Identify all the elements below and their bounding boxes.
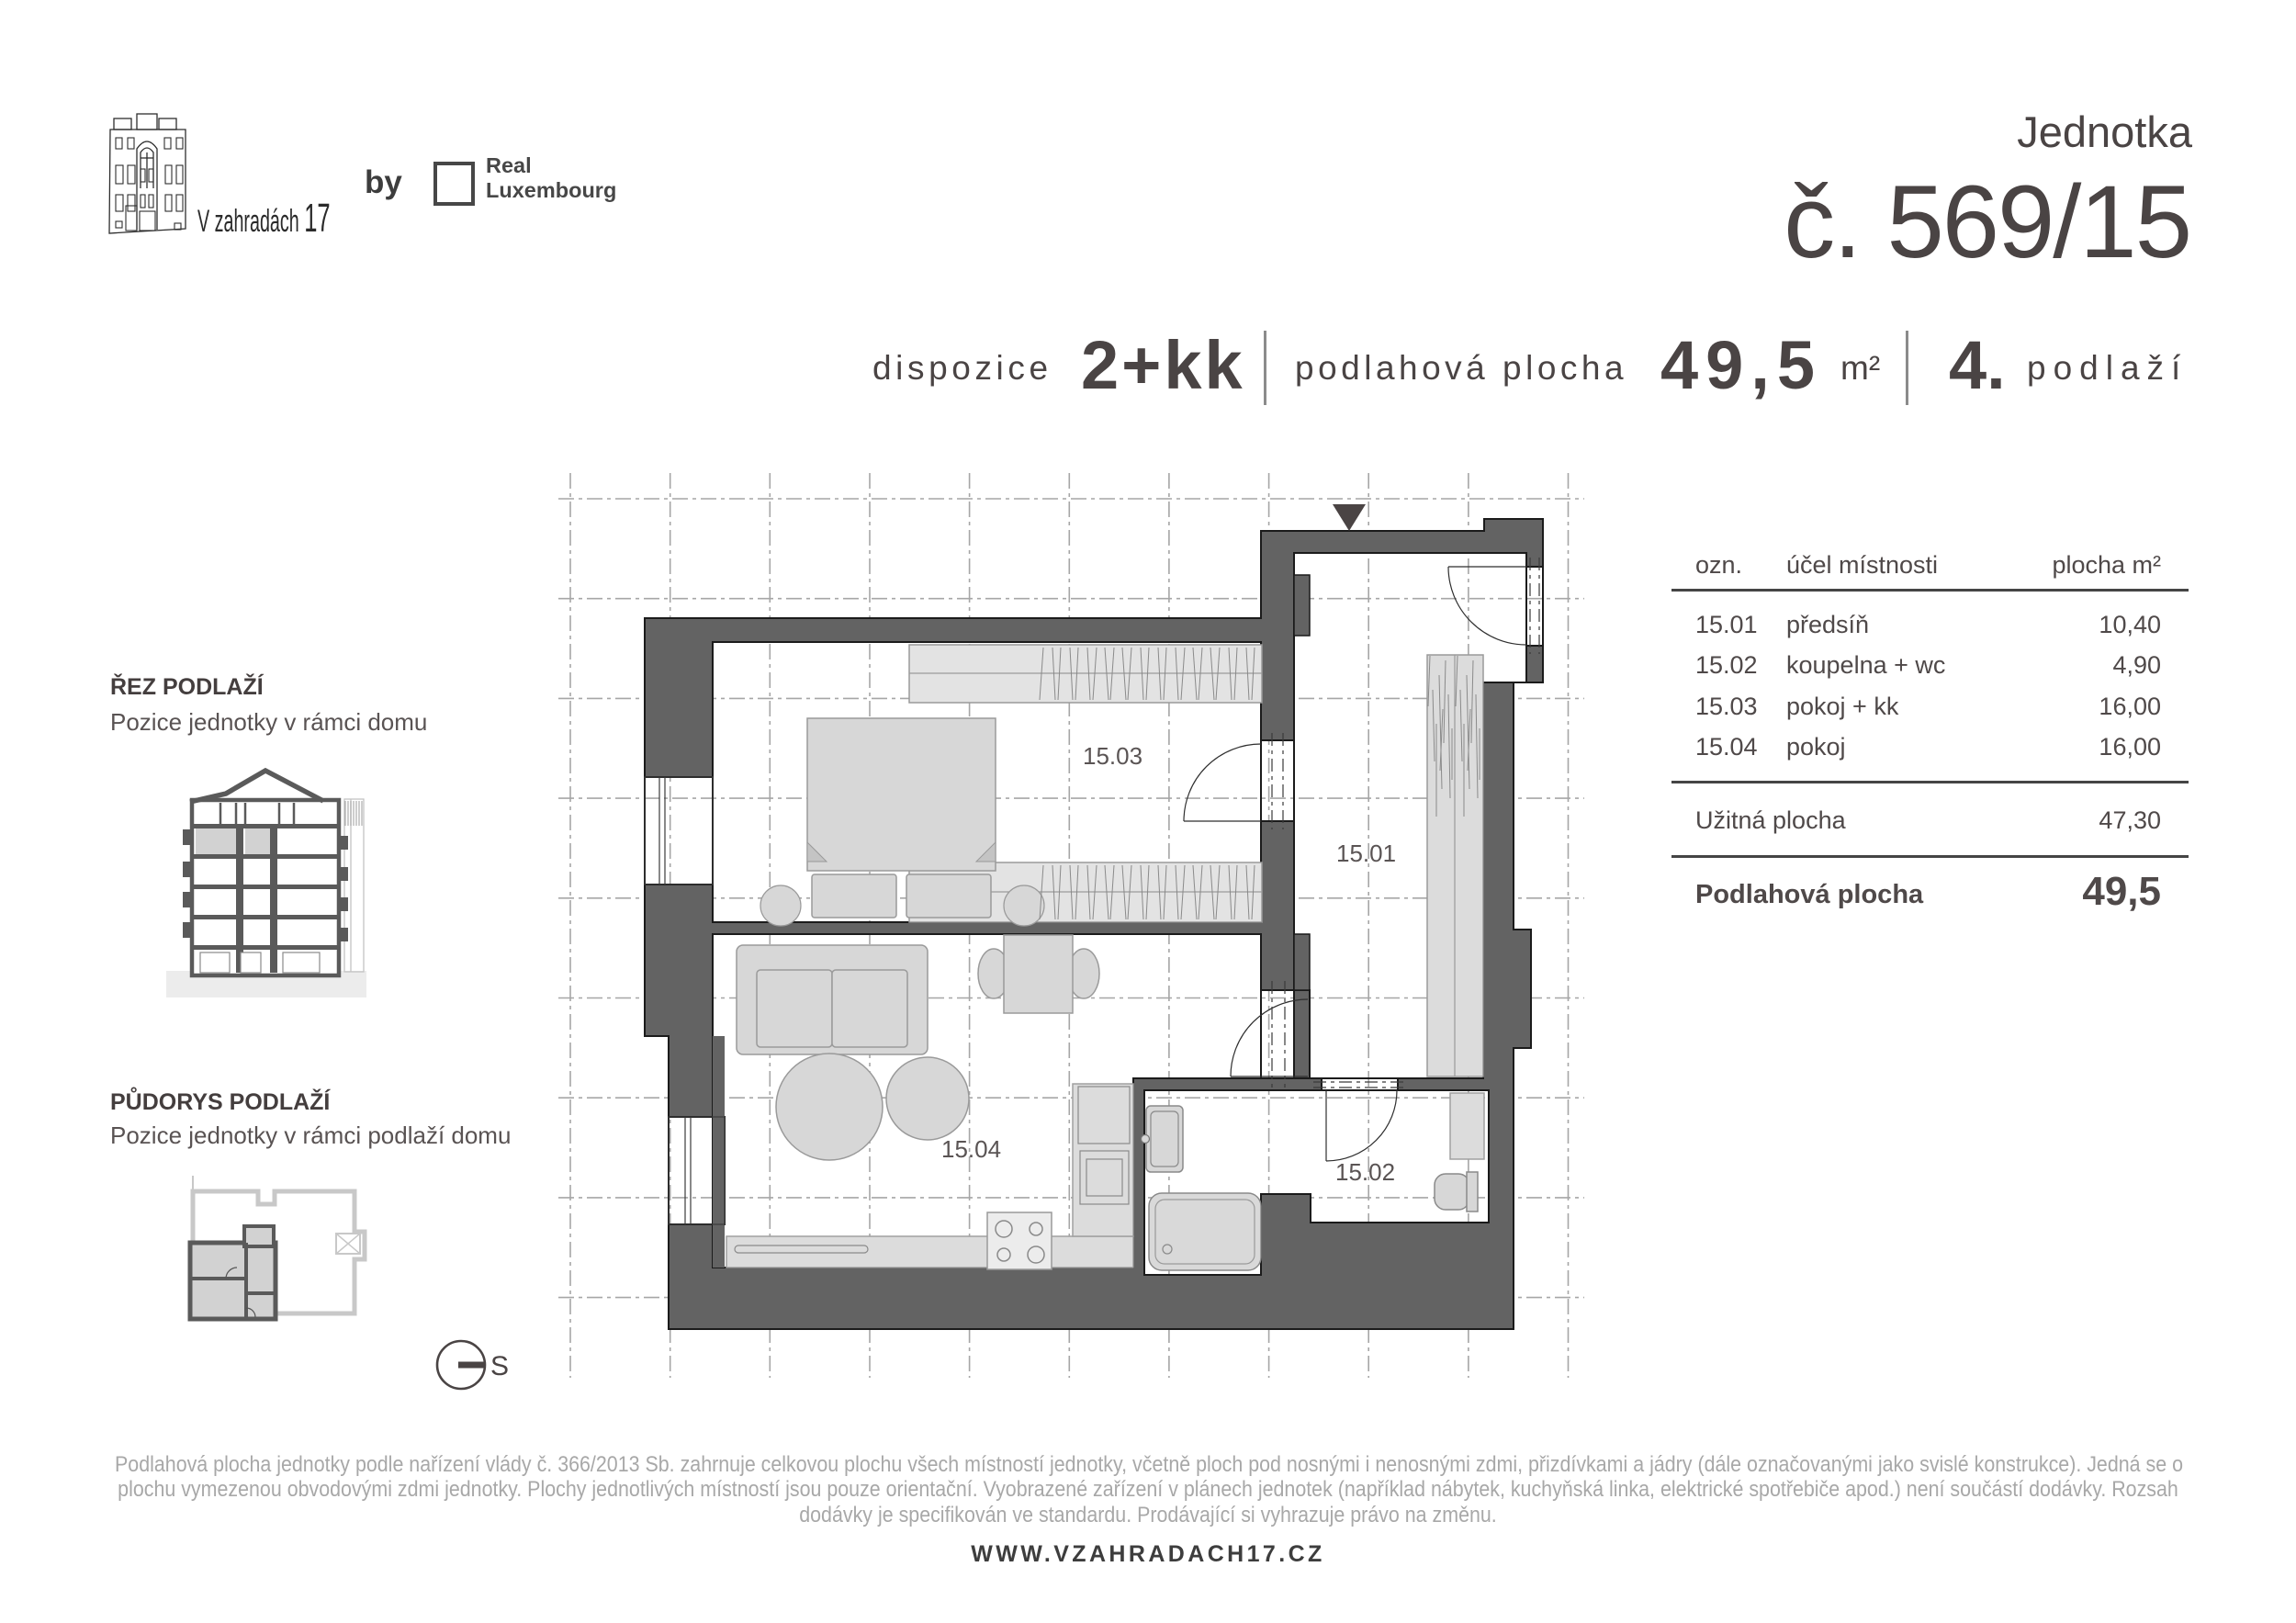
svg-text:15.01: 15.01	[1336, 840, 1396, 867]
svg-text:15.02: 15.02	[1335, 1158, 1395, 1186]
svg-text:15.03: 15.03	[1083, 742, 1142, 770]
svg-text:S: S	[490, 1351, 509, 1381]
svg-text:15.04: 15.04	[941, 1135, 1001, 1163]
